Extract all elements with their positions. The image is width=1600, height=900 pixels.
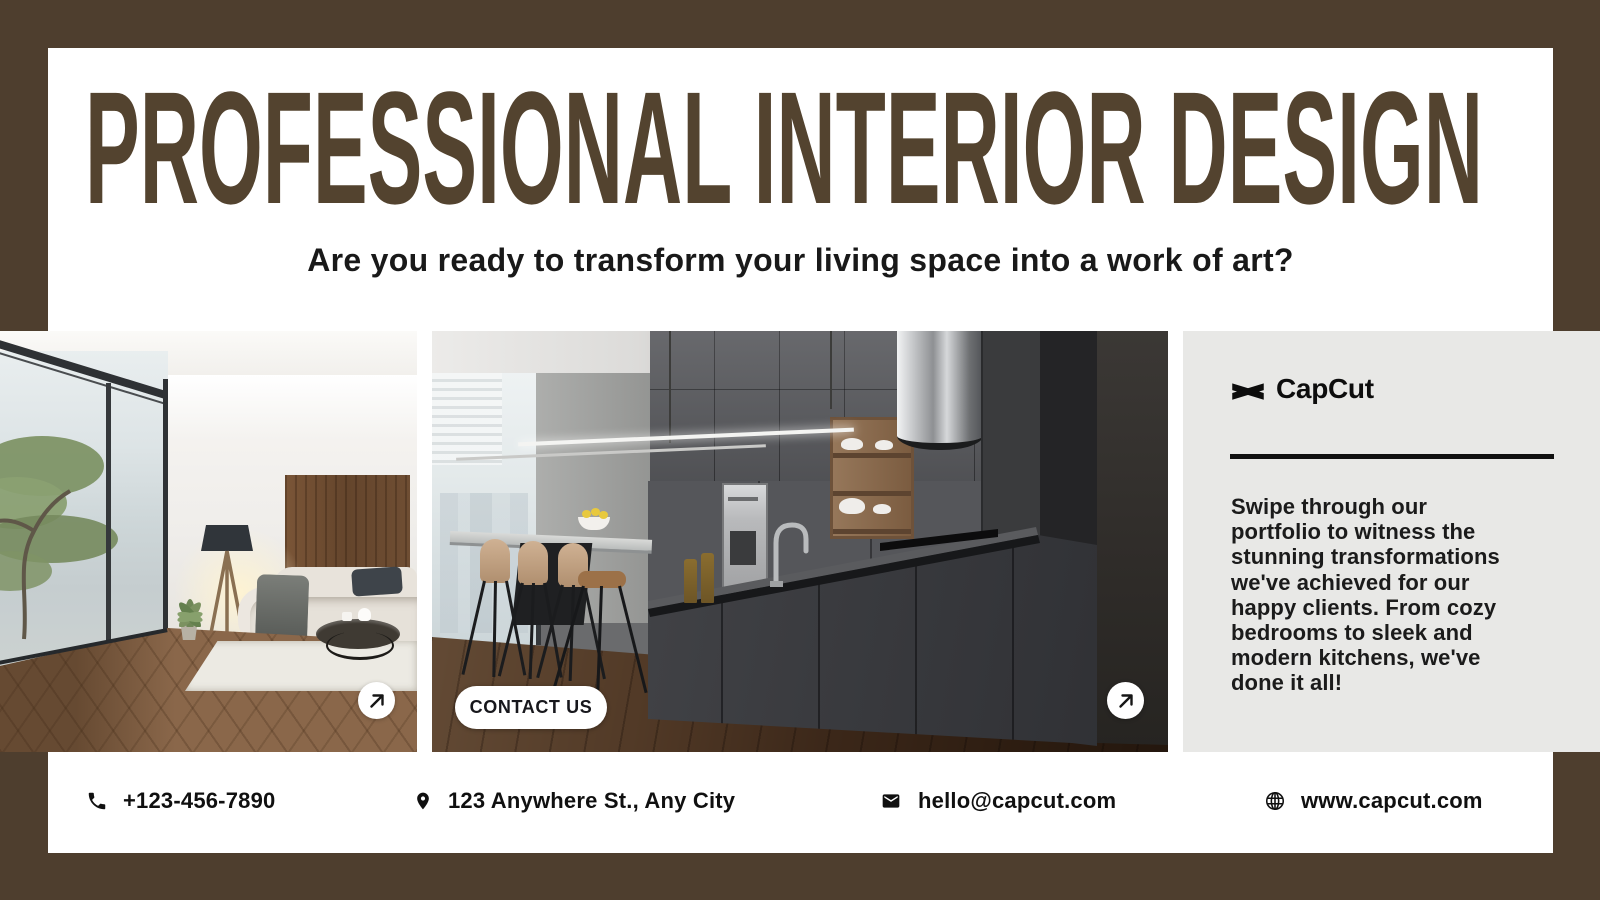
- footer-email: hello@capcut.com: [879, 785, 1116, 817]
- contact-us-label: CONTACT US: [470, 697, 593, 718]
- phone-number: +123-456-7890: [123, 788, 275, 814]
- bowl: [841, 438, 863, 450]
- coffee-table-legs: [326, 631, 394, 660]
- flyer-canvas: PROFESSIONAL INTERIOR DESIGN Are you rea…: [0, 0, 1600, 900]
- pendant-wire: [669, 331, 671, 443]
- lemon: [582, 510, 591, 518]
- capcut-logo-icon: [1230, 375, 1266, 403]
- email-text: hello@capcut.com: [918, 788, 1116, 814]
- footer-phone: +123-456-7890: [86, 785, 275, 817]
- blinds: [432, 373, 502, 465]
- window-mullion: [106, 383, 111, 641]
- expand-button[interactable]: [1107, 682, 1144, 719]
- table-vase: [358, 608, 371, 621]
- footer-address: 123 Anywhere St., Any City: [413, 785, 735, 817]
- bottle: [684, 559, 697, 603]
- oven-handle: [728, 497, 758, 501]
- plant-leaves: [166, 593, 214, 627]
- portfolio-description: Swipe through our portfolio to witness t…: [1231, 494, 1543, 696]
- subtitle-text: Are you ready to transform your living s…: [48, 242, 1553, 279]
- globe-icon: [1264, 790, 1286, 812]
- tree: [0, 411, 152, 641]
- dark-pillow: [351, 566, 403, 596]
- divider-line: [1230, 454, 1554, 459]
- map-pin-icon: [413, 789, 433, 813]
- table-cup: [342, 612, 352, 621]
- expand-button[interactable]: [358, 682, 395, 719]
- faucet: [768, 517, 812, 589]
- bowl: [839, 498, 865, 514]
- website-text: www.capcut.com: [1301, 788, 1483, 814]
- bowl: [873, 504, 891, 514]
- pendant-wire: [830, 331, 832, 409]
- envelope-icon: [879, 791, 903, 811]
- phone-icon: [86, 790, 108, 812]
- headline: PROFESSIONAL INTERIOR DESIGN: [48, 48, 1553, 238]
- bowl: [875, 440, 893, 450]
- bottle: [701, 553, 714, 603]
- address-text: 123 Anywhere St., Any City: [448, 788, 735, 814]
- range-hood: [897, 331, 983, 450]
- lemon: [599, 511, 608, 519]
- arrow-up-right-icon: [359, 683, 395, 719]
- page-title: PROFESSIONAL INTERIOR DESIGN: [85, 58, 1483, 237]
- contact-us-button[interactable]: CONTACT US: [455, 686, 607, 729]
- brand-logo-row: CapCut: [1230, 373, 1374, 405]
- brand-name: CapCut: [1276, 373, 1374, 405]
- living-room-photo: [0, 331, 417, 752]
- info-panel: CapCut Swipe through our portfolio to wi…: [1183, 331, 1600, 752]
- footer-website: www.capcut.com: [1264, 785, 1483, 817]
- arrow-up-right-icon: [1108, 683, 1144, 719]
- oven-window: [730, 531, 756, 565]
